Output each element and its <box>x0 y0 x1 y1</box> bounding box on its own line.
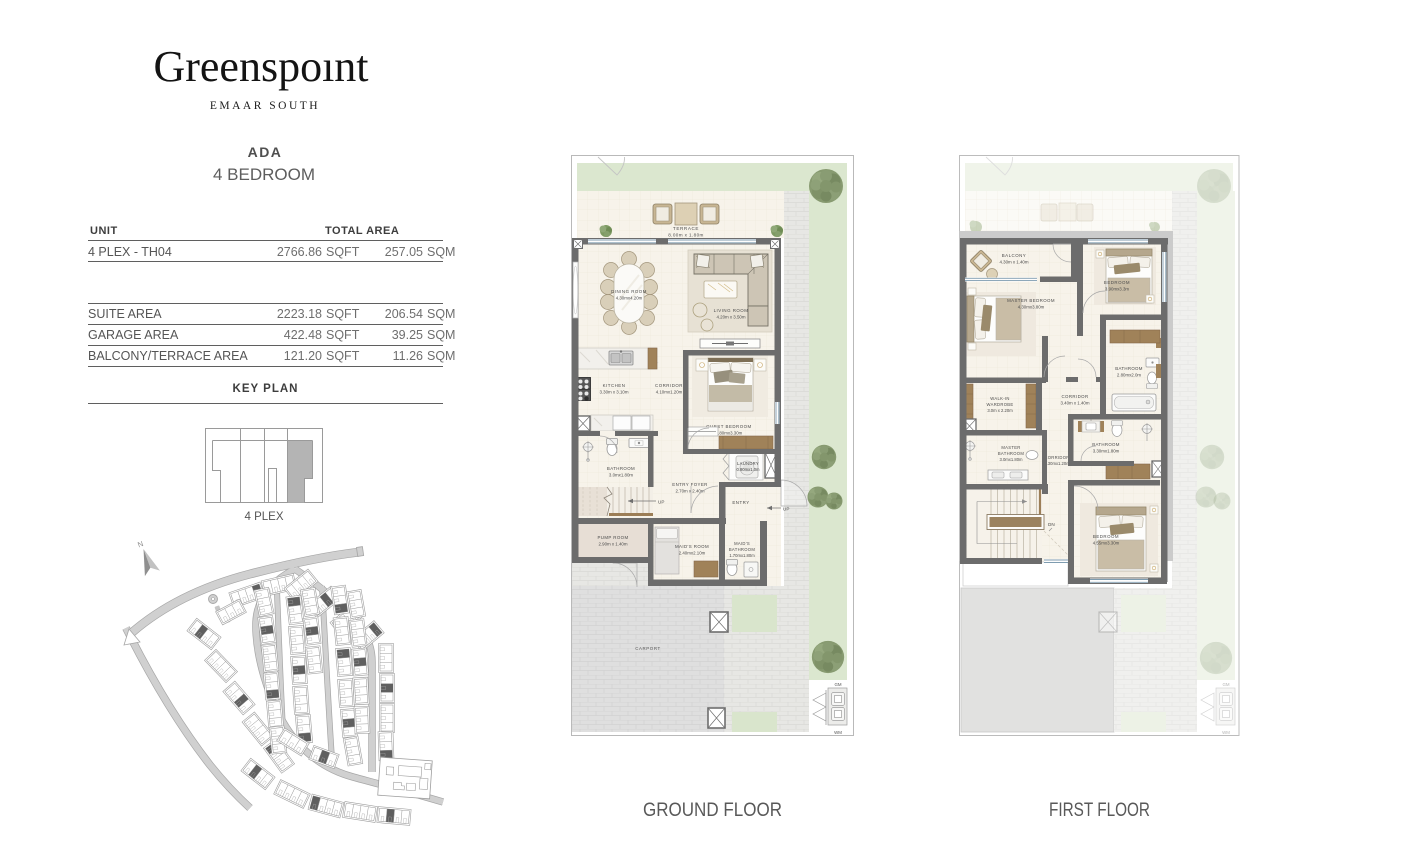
svg-text:MAID'S: MAID'S <box>734 541 750 546</box>
svg-text:BEDROOM: BEDROOM <box>1093 534 1119 539</box>
svg-text:3.90mx3.3m: 3.90mx3.3m <box>1105 287 1130 292</box>
svg-text:LAUNDRY: LAUNDRY <box>737 461 759 466</box>
svg-text:3.0mx1.80m: 3.0mx1.80m <box>609 473 634 478</box>
svg-text:N: N <box>136 539 144 549</box>
svg-text:MAID'S ROOM: MAID'S ROOM <box>675 544 709 549</box>
svg-text:8.00m x 1.80m: 8.00m x 1.80m <box>668 233 704 238</box>
svg-text:CORRIDOR: CORRIDOR <box>1061 394 1088 399</box>
svg-text:4.30mx1.20m: 4.30mx1.20m <box>1044 461 1070 466</box>
svg-text:UP: UP <box>783 507 789 512</box>
svg-text:CORRIDOR: CORRIDOR <box>1044 455 1069 460</box>
svg-text:4.10mx1.20m: 4.10mx1.20m <box>656 390 683 395</box>
svg-text:3.80mx3.30m: 3.80mx3.30m <box>716 431 743 436</box>
svg-text:2.80mx2.0m: 2.80mx2.0m <box>1117 373 1142 378</box>
svg-text:ENTRY: ENTRY <box>732 500 749 505</box>
svg-text:4 PLEX: 4 PLEX <box>245 511 284 523</box>
svg-text:2.90m x 1.40m: 2.90m x 1.40m <box>598 542 627 547</box>
svg-text:4.30mx3.80m: 4.30mx3.80m <box>1018 305 1045 310</box>
svg-text:2.40mx2.10m: 2.40mx2.10m <box>679 551 706 556</box>
svg-text:3.0m x 2.20m: 3.0m x 2.20m <box>987 408 1013 413</box>
svg-text:KITCHEN: KITCHEN <box>603 383 626 388</box>
svg-text:3.40m x 1.40m: 3.40m x 1.40m <box>1060 401 1089 406</box>
svg-text:3.0mx1.80m: 3.0mx1.80m <box>999 457 1023 462</box>
svg-text:UP: UP <box>658 500 664 505</box>
svg-text:GM: GM <box>834 682 841 687</box>
svg-text:4.30mx4.20m: 4.30mx4.20m <box>616 296 643 301</box>
svg-text:LIVING ROOM: LIVING ROOM <box>714 308 749 313</box>
svg-text:BATHROOM: BATHROOM <box>1092 442 1119 447</box>
svg-text:FIRST FLOOR: FIRST FLOOR <box>1049 800 1150 821</box>
svg-text:DN: DN <box>1048 522 1055 527</box>
svg-text:4.20m x 3.50m: 4.20m x 3.50m <box>716 315 745 320</box>
svg-text:BATHROOM: BATHROOM <box>1115 366 1142 371</box>
svg-text:3.30m x 3.10m: 3.30m x 3.10m <box>599 390 628 395</box>
svg-text:TERRACE: TERRACE <box>673 226 699 231</box>
svg-text:DINING ROOM: DINING ROOM <box>611 289 647 294</box>
svg-text:BALCONY: BALCONY <box>1002 253 1026 258</box>
svg-text:4.30m x 1.40m: 4.30m x 1.40m <box>999 260 1028 265</box>
svg-text:WM: WM <box>1222 730 1230 735</box>
svg-text:MASTER: MASTER <box>1001 445 1020 450</box>
svg-text:4.55mx3.30m: 4.55mx3.30m <box>1093 541 1120 546</box>
svg-text:3.30mx1.80m: 3.30mx1.80m <box>1093 449 1120 454</box>
svg-text:CARPORT: CARPORT <box>635 646 661 651</box>
svg-text:WM: WM <box>834 730 842 735</box>
svg-text:BATHROOM: BATHROOM <box>998 451 1024 456</box>
svg-text:1.70mx1.80m: 1.70mx1.80m <box>729 553 755 558</box>
svg-text:GM: GM <box>1222 682 1229 687</box>
svg-text:0.90mx1.0m: 0.90mx1.0m <box>736 467 760 472</box>
svg-text:BATHROOM: BATHROOM <box>607 466 635 471</box>
svg-text:GROUND FLOOR: GROUND FLOOR <box>643 800 782 821</box>
svg-text:MASTER BEDROOM: MASTER BEDROOM <box>1007 298 1055 303</box>
svg-text:WALK-IN: WALK-IN <box>990 396 1009 401</box>
svg-text:CORRIDOR: CORRIDOR <box>655 383 683 388</box>
svg-text:BEDROOM: BEDROOM <box>1104 280 1130 285</box>
svg-text:ENTRY FOYER: ENTRY FOYER <box>672 482 707 487</box>
svg-text:WARDROBE: WARDROBE <box>987 402 1014 407</box>
svg-text:PUMP ROOM: PUMP ROOM <box>597 535 628 540</box>
svg-text:BATHROOM: BATHROOM <box>729 547 755 552</box>
